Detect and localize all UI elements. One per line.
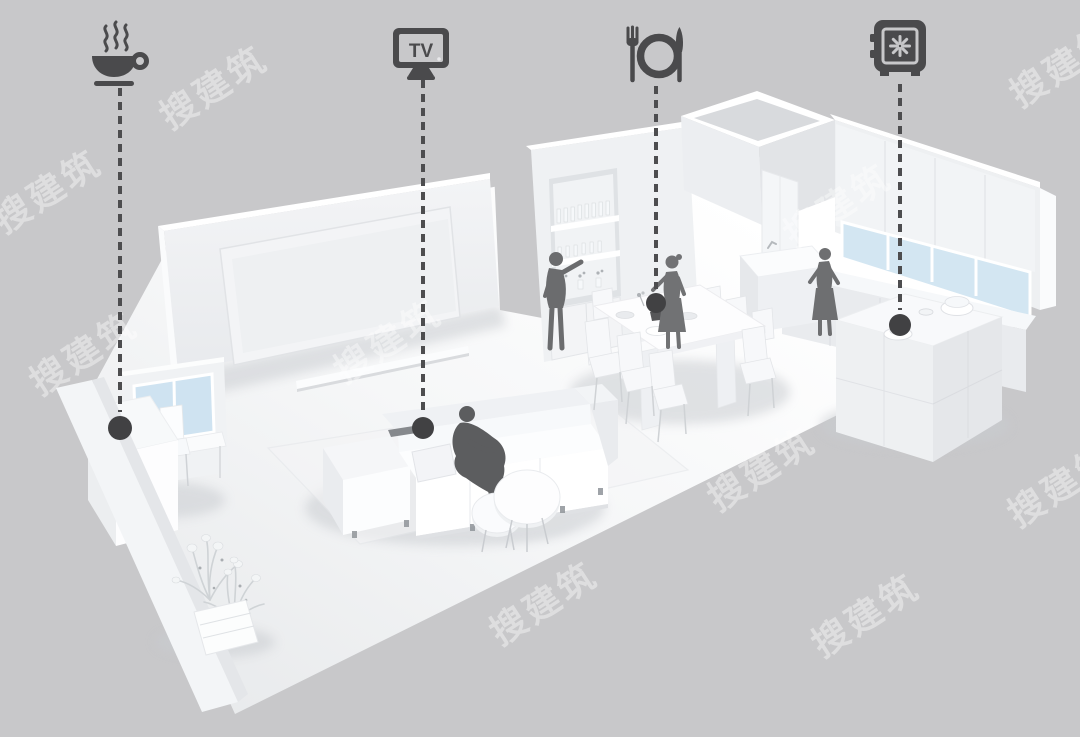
apartment-annotation-image: 搜建筑搜建筑搜建筑搜建筑搜建筑搜建筑搜建筑搜建筑搜建筑搜建筑 TV <box>0 0 1080 737</box>
apartment-render <box>0 0 1080 737</box>
